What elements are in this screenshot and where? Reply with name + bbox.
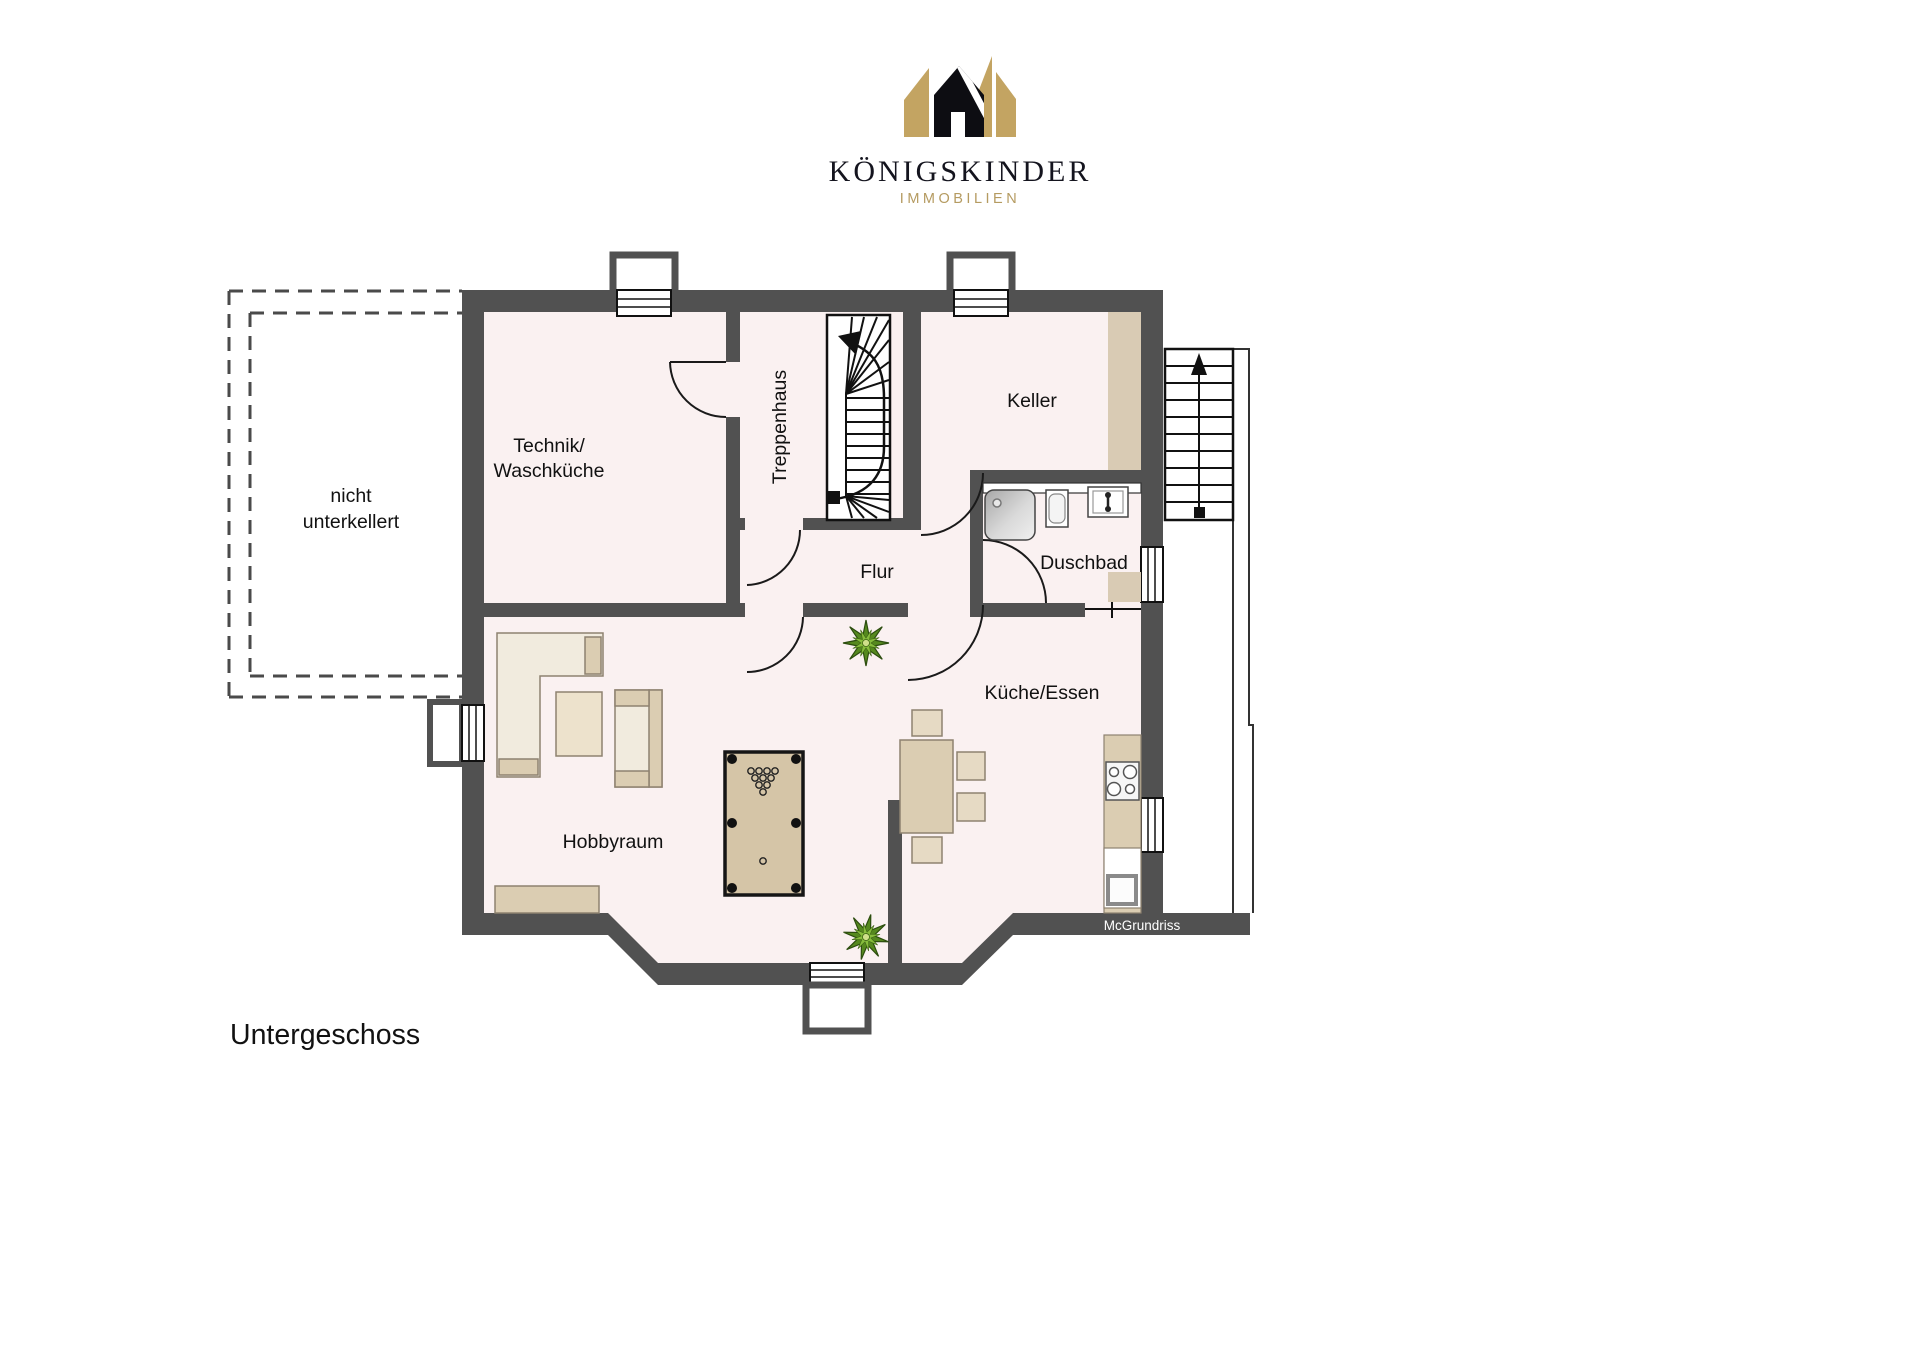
window-icon <box>617 290 671 316</box>
chair-icon <box>957 793 985 821</box>
note-line2: unterkellert <box>303 511 400 533</box>
interior-stair-icon <box>827 315 890 520</box>
page-canvas: KÖNIGSKINDER IMMOBILIEN nicht unterkelle… <box>0 0 1920 1357</box>
chair-icon <box>912 837 942 863</box>
label-kueche: Küche/Essen <box>985 682 1100 704</box>
crown-icon <box>904 56 1016 137</box>
light-well-icon <box>950 255 1012 293</box>
window-icon <box>1141 798 1163 852</box>
label-duschbad: Duschbad <box>1040 552 1128 574</box>
brand-name: KÖNIGSKINDER <box>829 155 1092 188</box>
floor-plan: KÖNIGSKINDER IMMOBILIEN nicht unterkelle… <box>0 0 1920 1357</box>
label-flur: Flur <box>860 561 894 583</box>
light-well-icon <box>806 985 868 1031</box>
chair-icon <box>957 752 985 780</box>
window-icon <box>1141 547 1163 602</box>
page-title: Untergeschoss <box>230 1019 420 1051</box>
label-technik-1: Technik/ <box>513 435 585 457</box>
brand-tagline: IMMOBILIEN <box>900 191 1020 207</box>
kitchen-fixtures <box>1104 735 1141 913</box>
shower-icon <box>985 490 1035 540</box>
logo: KÖNIGSKINDER IMMOBILIEN <box>829 56 1092 207</box>
billiard-table <box>725 752 803 895</box>
coffee-table <box>556 692 602 756</box>
watermark: McGrundriss <box>1104 918 1181 933</box>
exterior-stair-icon <box>1165 349 1253 913</box>
label-technik-2: Waschküche <box>494 460 605 482</box>
window-icon <box>462 705 484 761</box>
label-hobbyraum: Hobbyraum <box>563 831 664 853</box>
kitchen-sink-icon <box>1108 876 1136 904</box>
window-icon <box>954 290 1008 316</box>
chair-icon <box>912 710 942 736</box>
light-well-icon <box>430 702 462 764</box>
dining-table <box>900 740 953 833</box>
label-treppenhaus: Treppenhaus <box>769 370 791 484</box>
bath-cabinet <box>1108 572 1141 602</box>
shower-drain-icon <box>993 499 1001 507</box>
plant-icon <box>843 620 889 666</box>
label-keller: Keller <box>1007 390 1057 412</box>
sideboard <box>495 886 599 913</box>
cellar-shelf <box>1108 312 1141 470</box>
light-well-icon <box>613 255 675 293</box>
note-line1: nicht <box>330 485 372 507</box>
